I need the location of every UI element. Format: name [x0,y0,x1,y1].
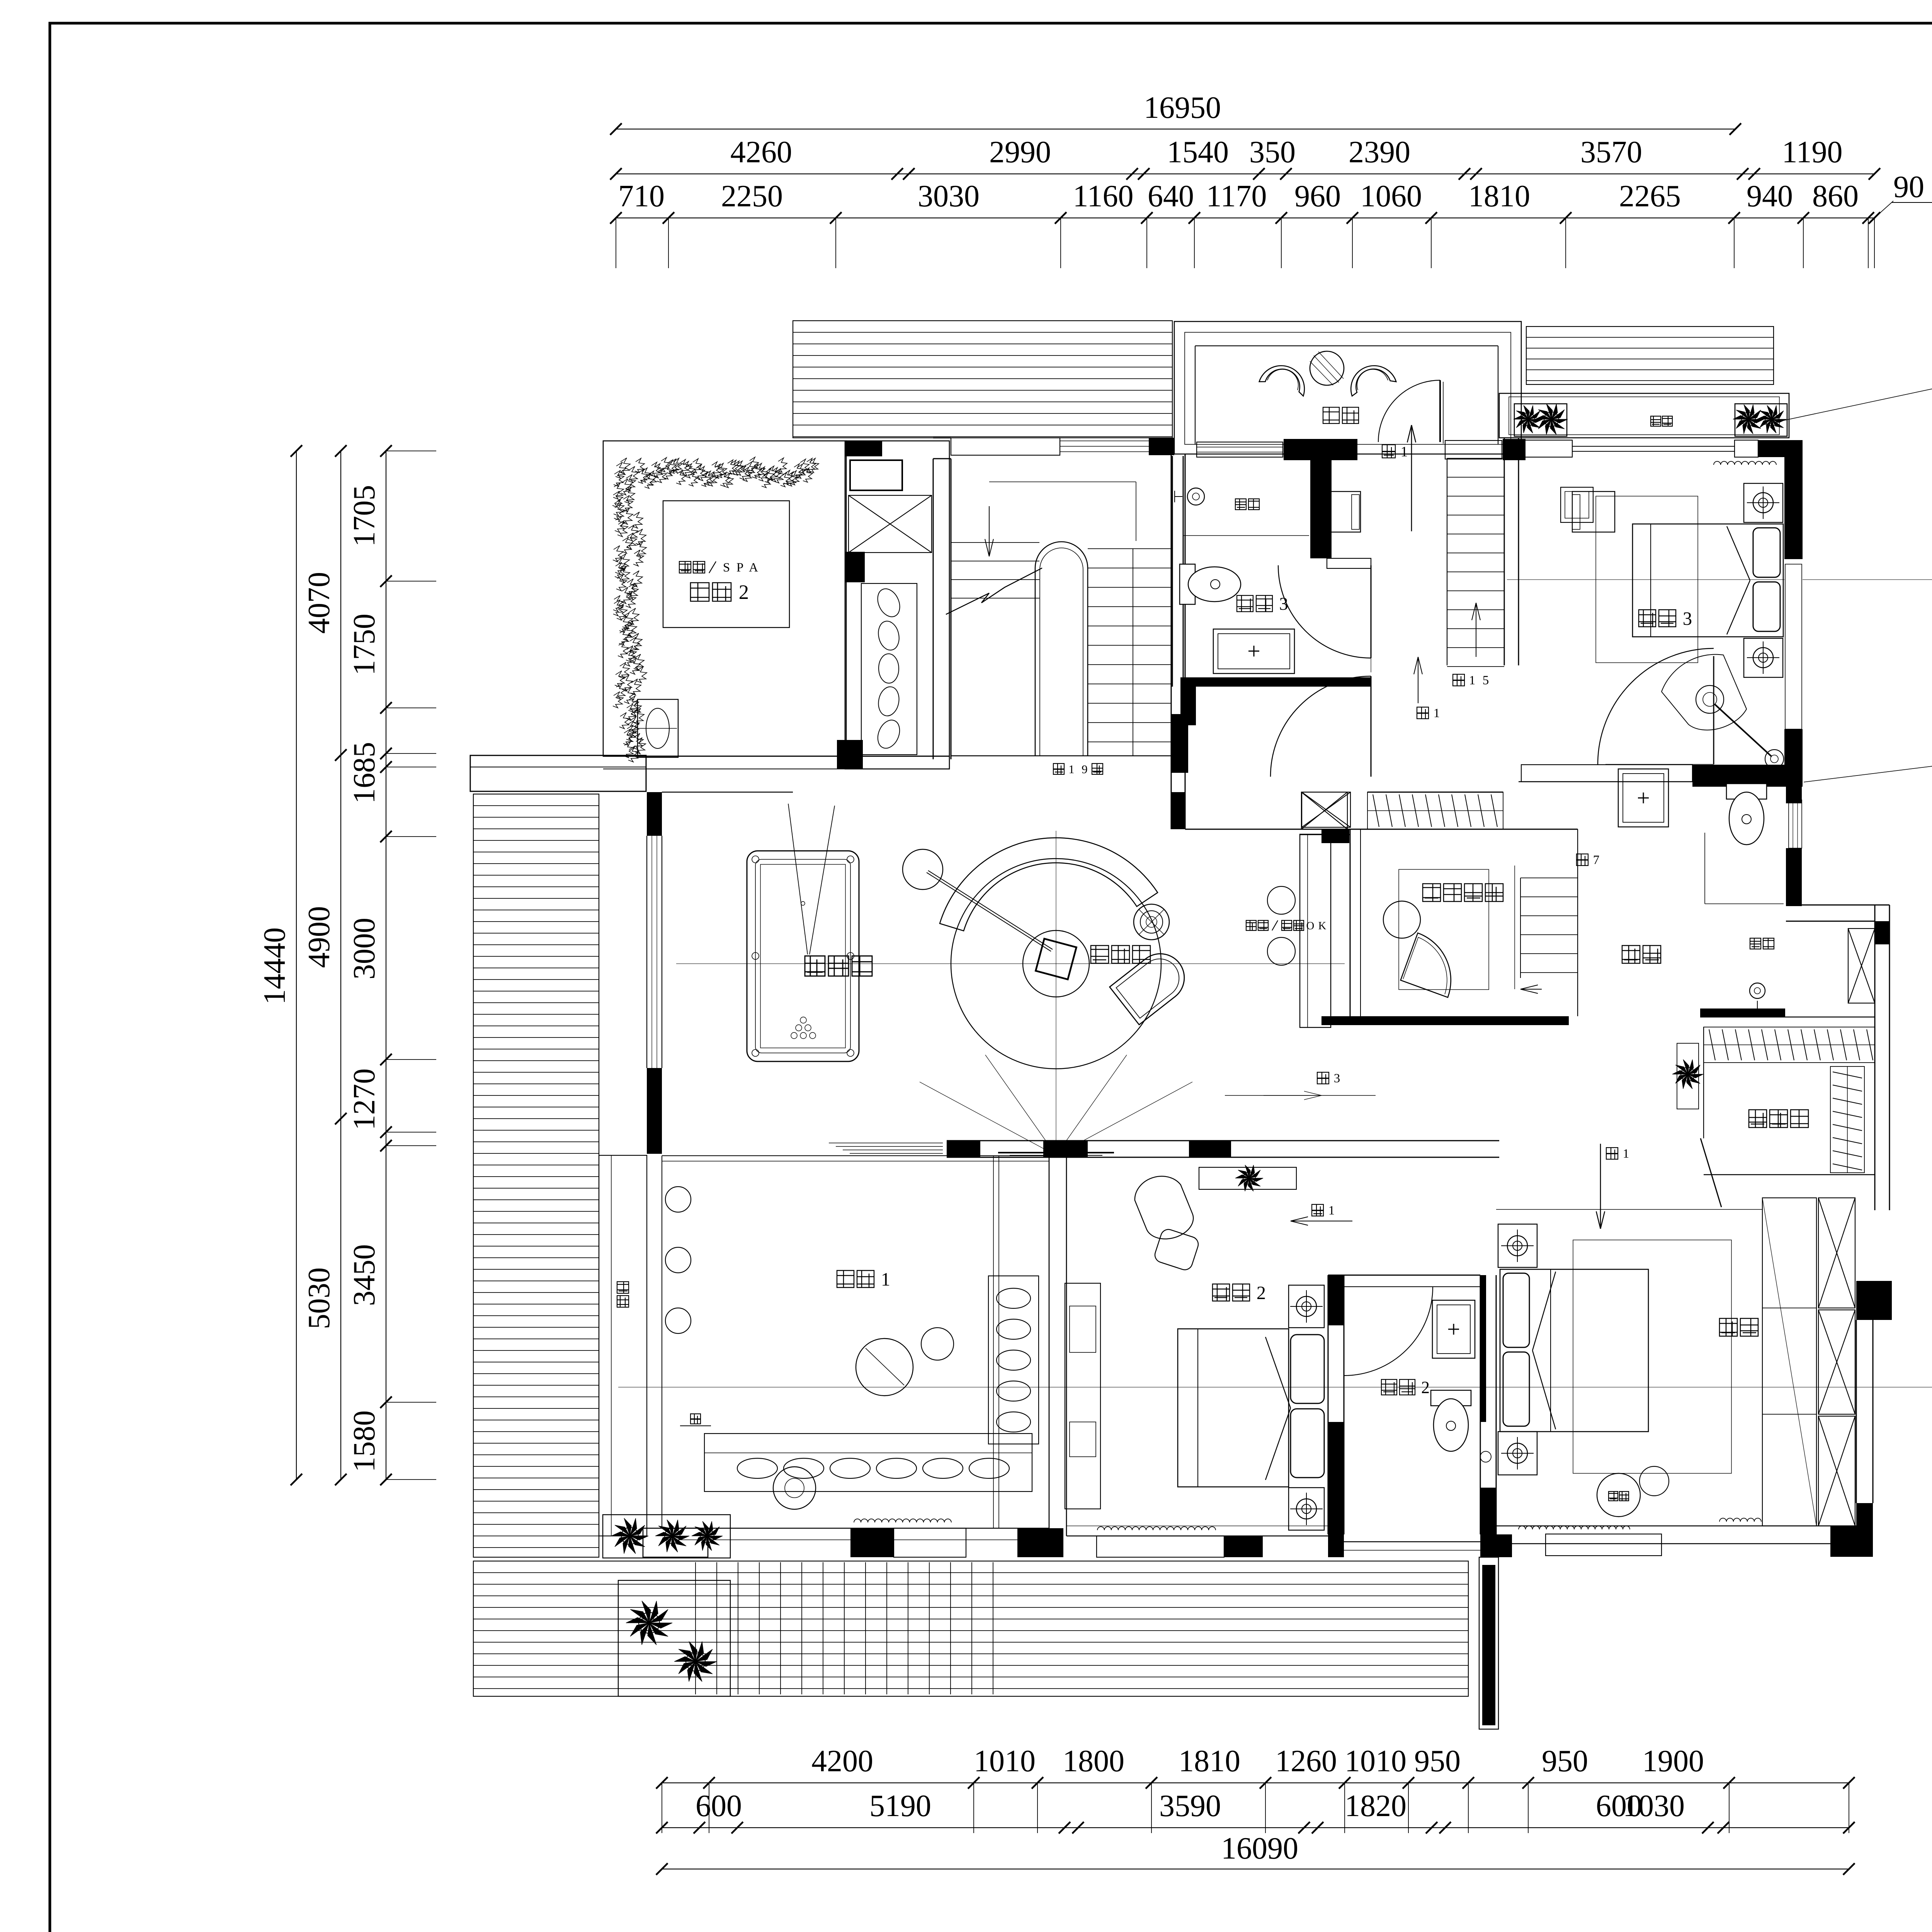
svg-text:950: 950 [1414,1744,1461,1778]
svg-text:860: 860 [1812,179,1859,213]
svg-text:14440: 14440 [258,927,292,1005]
svg-text:1030: 1030 [1623,1789,1685,1823]
svg-text:940: 940 [1747,179,1793,213]
svg-text:3: 3 [1683,609,1692,629]
svg-text:5030: 5030 [302,1267,336,1329]
svg-text:1820: 1820 [1345,1789,1406,1823]
svg-text:4070: 4070 [302,572,336,634]
svg-text:1685: 1685 [347,742,381,804]
svg-text:3030: 3030 [918,179,980,213]
svg-text:1810: 1810 [1179,1744,1240,1778]
svg-text:1900: 1900 [1642,1744,1704,1778]
svg-text:2250: 2250 [721,179,783,213]
svg-text:1810: 1810 [1468,179,1530,213]
svg-text:1: 1 [881,1269,890,1290]
svg-text:1160: 1160 [1073,179,1133,213]
svg-text:16090: 16090 [1221,1832,1298,1866]
svg-text:640: 640 [1148,179,1194,213]
svg-text:4260: 4260 [730,135,792,169]
svg-text:600: 600 [696,1789,742,1823]
svg-text:3570: 3570 [1580,135,1642,169]
svg-text:1: 1 [1068,763,1074,776]
svg-text:K: K [1318,920,1327,932]
svg-text:350: 350 [1249,135,1296,169]
svg-text:5190: 5190 [869,1789,931,1823]
svg-text:1170: 1170 [1206,179,1267,213]
svg-text:5: 5 [1483,673,1489,687]
svg-text:2: 2 [739,581,749,604]
svg-text:710: 710 [618,179,665,213]
svg-text:950: 950 [1542,1744,1588,1778]
svg-text:1060: 1060 [1360,179,1422,213]
svg-text:2: 2 [1257,1283,1266,1303]
svg-text:960: 960 [1294,179,1341,213]
svg-text:1010: 1010 [1345,1744,1406,1778]
svg-text:90: 90 [1893,170,1924,204]
svg-text:A: A [749,561,758,575]
svg-text:1270: 1270 [347,1068,381,1130]
svg-text:1580: 1580 [347,1410,381,1472]
svg-text:1800: 1800 [1063,1744,1124,1778]
svg-text:1260: 1260 [1275,1744,1337,1778]
svg-text:7: 7 [1593,853,1600,867]
svg-text:3450: 3450 [347,1244,381,1306]
svg-text:1: 1 [1401,444,1408,460]
svg-text:1750: 1750 [347,614,381,675]
svg-text:2990: 2990 [989,135,1051,169]
svg-text:1705: 1705 [347,485,381,547]
svg-text:1: 1 [1469,673,1476,687]
svg-text:1190: 1190 [1782,135,1842,169]
svg-text:4200: 4200 [811,1744,873,1778]
svg-text:3: 3 [1334,1071,1340,1085]
svg-text:9: 9 [1082,763,1087,776]
svg-text:1010: 1010 [974,1744,1036,1778]
svg-text:3000: 3000 [347,918,381,980]
svg-text:4900: 4900 [302,906,336,968]
svg-text:P: P [736,561,743,575]
svg-text:2390: 2390 [1349,135,1410,169]
svg-text:1: 1 [1623,1147,1629,1161]
svg-text:1: 1 [1434,706,1440,720]
svg-text:1: 1 [1328,1204,1335,1218]
svg-text:S: S [723,561,730,575]
svg-text:1540: 1540 [1167,135,1229,169]
svg-text:3590: 3590 [1159,1789,1221,1823]
svg-text:2265: 2265 [1619,179,1681,213]
svg-text:16950: 16950 [1144,91,1221,125]
